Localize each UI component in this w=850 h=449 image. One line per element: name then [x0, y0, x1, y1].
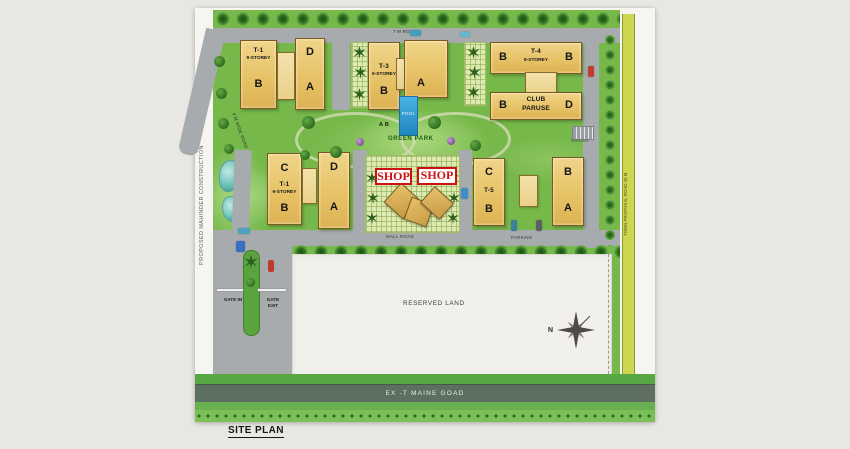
block-label-b: B	[268, 202, 301, 214]
green-park-label: GREEN PARK	[388, 136, 434, 142]
tree-column-east	[602, 32, 618, 246]
car	[511, 220, 517, 231]
guard-figure	[268, 260, 274, 272]
building-t4-slab: B T-4 8-STOREY B	[490, 42, 582, 74]
block-label-c: C	[268, 162, 301, 174]
site-plan-canvas: PROPOSED MAHINDER CONSTRUCTION 7 M ROAD …	[0, 0, 850, 449]
flower-bush	[447, 137, 455, 145]
building-t1-top-west-tower: T-1 9-STOREY B	[240, 40, 277, 109]
compass-north-label: N	[548, 327, 553, 334]
bush	[300, 150, 310, 160]
block-label-b: B	[241, 78, 276, 90]
boundary-dashed-line	[608, 254, 609, 374]
reserved-land-label: RESERVED LAND	[403, 300, 465, 307]
parking-strip-label: PARKING	[571, 139, 589, 143]
building-t1-mid-core	[302, 168, 317, 204]
building-name: T-1	[268, 181, 301, 188]
gate-bar-exit	[258, 289, 286, 291]
building-t4-club-link	[525, 72, 557, 94]
pool-label: POOL	[400, 111, 417, 116]
page-title: SITE PLAN	[228, 425, 284, 438]
main-road: EX -T MAINE GOAD	[195, 384, 655, 404]
car	[236, 241, 245, 252]
parking-strip	[572, 126, 594, 140]
main-road-label: EX -T MAINE GOAD	[195, 390, 655, 397]
car	[461, 188, 468, 199]
building-name: T-3	[369, 63, 399, 70]
building-t5-west-tower: C T-5 B	[473, 158, 505, 226]
block-label-d: D	[319, 161, 349, 173]
car	[460, 32, 470, 37]
block-label-a: A	[417, 77, 425, 89]
car	[536, 220, 542, 231]
block-label-a: A	[319, 201, 349, 213]
block-label-a: A	[553, 202, 583, 214]
building-storeys: 9-STOREY	[241, 56, 276, 61]
block-label-b: B	[369, 85, 399, 97]
block-label-b: B	[474, 203, 504, 215]
bush	[214, 56, 225, 67]
building-name: T-5	[474, 187, 504, 194]
bush	[246, 278, 255, 287]
building-t1-mid-west-tower: C T-1 9-STOREY B	[267, 153, 302, 225]
building-t5-core	[519, 175, 538, 207]
mall-road-label: MALL ROAD	[386, 234, 414, 239]
parking-label: PARKING	[511, 235, 533, 240]
gate-exit-label: GATE EXIT	[262, 297, 284, 308]
block-label-d: D	[565, 99, 573, 111]
gate-in-label: GATE IN	[222, 297, 244, 303]
bush	[428, 116, 441, 129]
building-t5-east-tower: B A	[552, 157, 584, 226]
building-club: B CLUB PARUSE D	[490, 92, 582, 120]
block-label-d: D	[296, 46, 324, 58]
building-t3-east-tower: A	[404, 40, 448, 98]
bush	[470, 140, 481, 151]
block-label-b-right: B	[565, 51, 573, 63]
block-label-c: C	[474, 166, 504, 178]
gate-bar-in	[217, 289, 243, 291]
building-t1-mid-east-tower: D A	[318, 152, 350, 229]
building-t1-top-east-tower: D A	[295, 38, 325, 110]
shop-sign: SHOP	[375, 168, 412, 185]
flower-bush	[356, 138, 364, 146]
pool-block-note: A B	[379, 122, 389, 128]
left-boundary-note: PROPOSED MAHINDER CONSTRUCTION	[199, 138, 211, 273]
building-name: T-1	[241, 47, 276, 54]
tree-row-top	[214, 10, 620, 29]
internal-road-t1-t3	[332, 38, 350, 110]
car	[238, 228, 250, 234]
building-storeys: 9-STOREY	[268, 190, 301, 195]
bush	[224, 144, 234, 154]
building-t1-top-core	[277, 52, 295, 100]
shop-sign: SHOP	[417, 167, 457, 185]
right-road-label: TOWN PROPOSAL ROAD 45 M	[623, 148, 633, 260]
building-storeys: 9-STOREY	[369, 72, 399, 77]
car	[588, 66, 594, 77]
bush	[216, 88, 227, 99]
bush	[302, 116, 315, 129]
hedge-dots	[195, 412, 655, 420]
block-label-b: B	[553, 166, 583, 178]
car	[410, 30, 421, 36]
bush	[218, 118, 229, 129]
main-road-verge-top	[195, 374, 655, 384]
main-road-verge-bottom	[195, 402, 655, 410]
pool: POOL	[399, 96, 418, 136]
block-label-a: A	[296, 81, 324, 93]
compass-rose-icon	[556, 310, 596, 350]
bush	[330, 146, 342, 158]
